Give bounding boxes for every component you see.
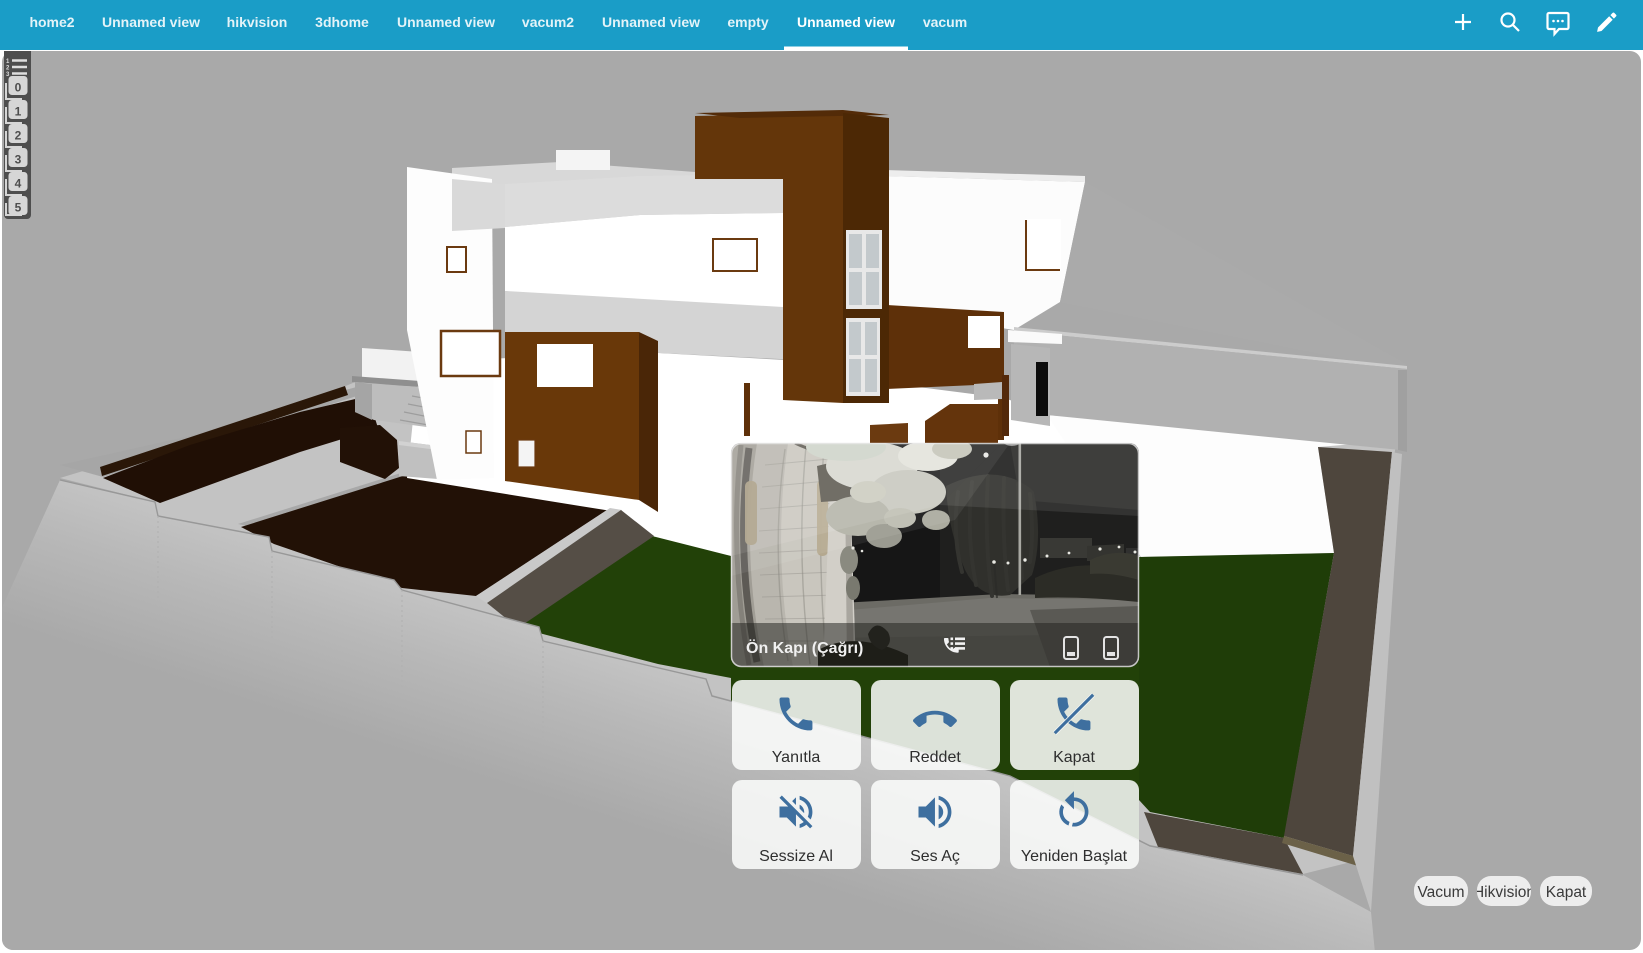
svg-text:vacum2: vacum2 [522, 14, 574, 30]
svg-text:1: 1 [15, 105, 22, 119]
svg-text:Yeniden Başlat: Yeniden Başlat [1021, 848, 1128, 865]
svg-text:empty: empty [727, 14, 768, 30]
svg-text:3dhome: 3dhome [315, 14, 369, 30]
svg-text:Kapat: Kapat [1053, 749, 1095, 766]
svg-text:0: 0 [15, 81, 22, 95]
svg-text:Ses Aç: Ses Aç [910, 848, 960, 865]
svg-text:Reddet: Reddet [909, 749, 961, 766]
svg-text:2: 2 [15, 129, 22, 143]
svg-text:Unnamed view: Unnamed view [102, 14, 200, 30]
svg-text:Unnamed view: Unnamed view [602, 14, 700, 30]
svg-text:Unnamed view: Unnamed view [397, 14, 495, 30]
svg-text:Yanıtla: Yanıtla [772, 749, 821, 766]
svg-text:vacum: vacum [923, 14, 967, 30]
svg-text:Unnamed view: Unnamed view [797, 14, 895, 30]
svg-text:Hikvision: Hikvision [1473, 884, 1535, 901]
svg-text:3: 3 [15, 153, 22, 167]
svg-text:Ön Kapı (Çağrı): Ön Kapı (Çağrı) [746, 638, 863, 657]
svg-text:Kapat: Kapat [1546, 884, 1587, 901]
svg-text:Sessize Al: Sessize Al [759, 848, 833, 865]
svg-text:home2: home2 [29, 14, 74, 30]
svg-text:hikvision: hikvision [227, 14, 288, 30]
svg-text:5: 5 [15, 201, 22, 215]
svg-text:4: 4 [15, 177, 22, 191]
svg-text:Vacum: Vacum [1417, 884, 1464, 901]
